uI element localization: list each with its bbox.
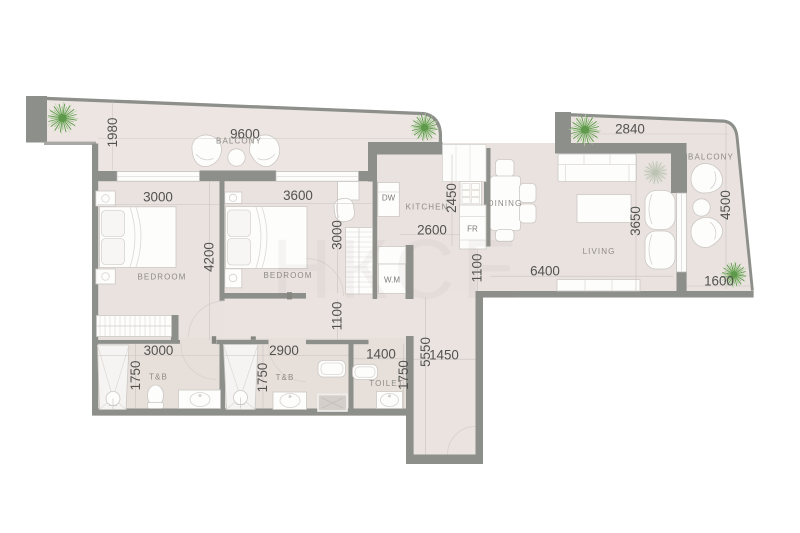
svg-text:BALCONY: BALCONY: [688, 153, 734, 162]
svg-text:T&B: T&B: [149, 373, 168, 382]
svg-text:DINING: DINING: [488, 199, 523, 208]
svg-text:LIVING: LIVING: [583, 247, 616, 256]
svg-text:2840: 2840: [615, 122, 645, 137]
svg-text:4500: 4500: [718, 190, 733, 220]
svg-text:1980: 1980: [105, 118, 120, 148]
svg-text:НКСЕ: НКСЕ: [271, 222, 524, 316]
svg-text:1400: 1400: [366, 346, 396, 361]
svg-text:T&B: T&B: [276, 373, 295, 382]
svg-text:3600: 3600: [283, 188, 313, 203]
svg-text:1750: 1750: [255, 363, 270, 393]
svg-text:BEDROOM: BEDROOM: [137, 273, 186, 282]
svg-text:3650: 3650: [628, 206, 643, 236]
svg-text:DW: DW: [382, 194, 396, 203]
svg-text:2900: 2900: [269, 343, 299, 358]
svg-text:3000: 3000: [143, 190, 173, 205]
svg-text:BALCONY: BALCONY: [216, 137, 262, 146]
svg-text:TOILET: TOILET: [369, 379, 403, 388]
svg-text:1450: 1450: [429, 347, 459, 362]
svg-text:1750: 1750: [128, 361, 143, 391]
svg-text:3000: 3000: [144, 343, 174, 358]
svg-text:1600: 1600: [704, 274, 734, 289]
svg-text:KITCHEN: KITCHEN: [406, 203, 449, 212]
svg-text:4200: 4200: [202, 242, 217, 272]
svg-text:6400: 6400: [530, 264, 560, 279]
